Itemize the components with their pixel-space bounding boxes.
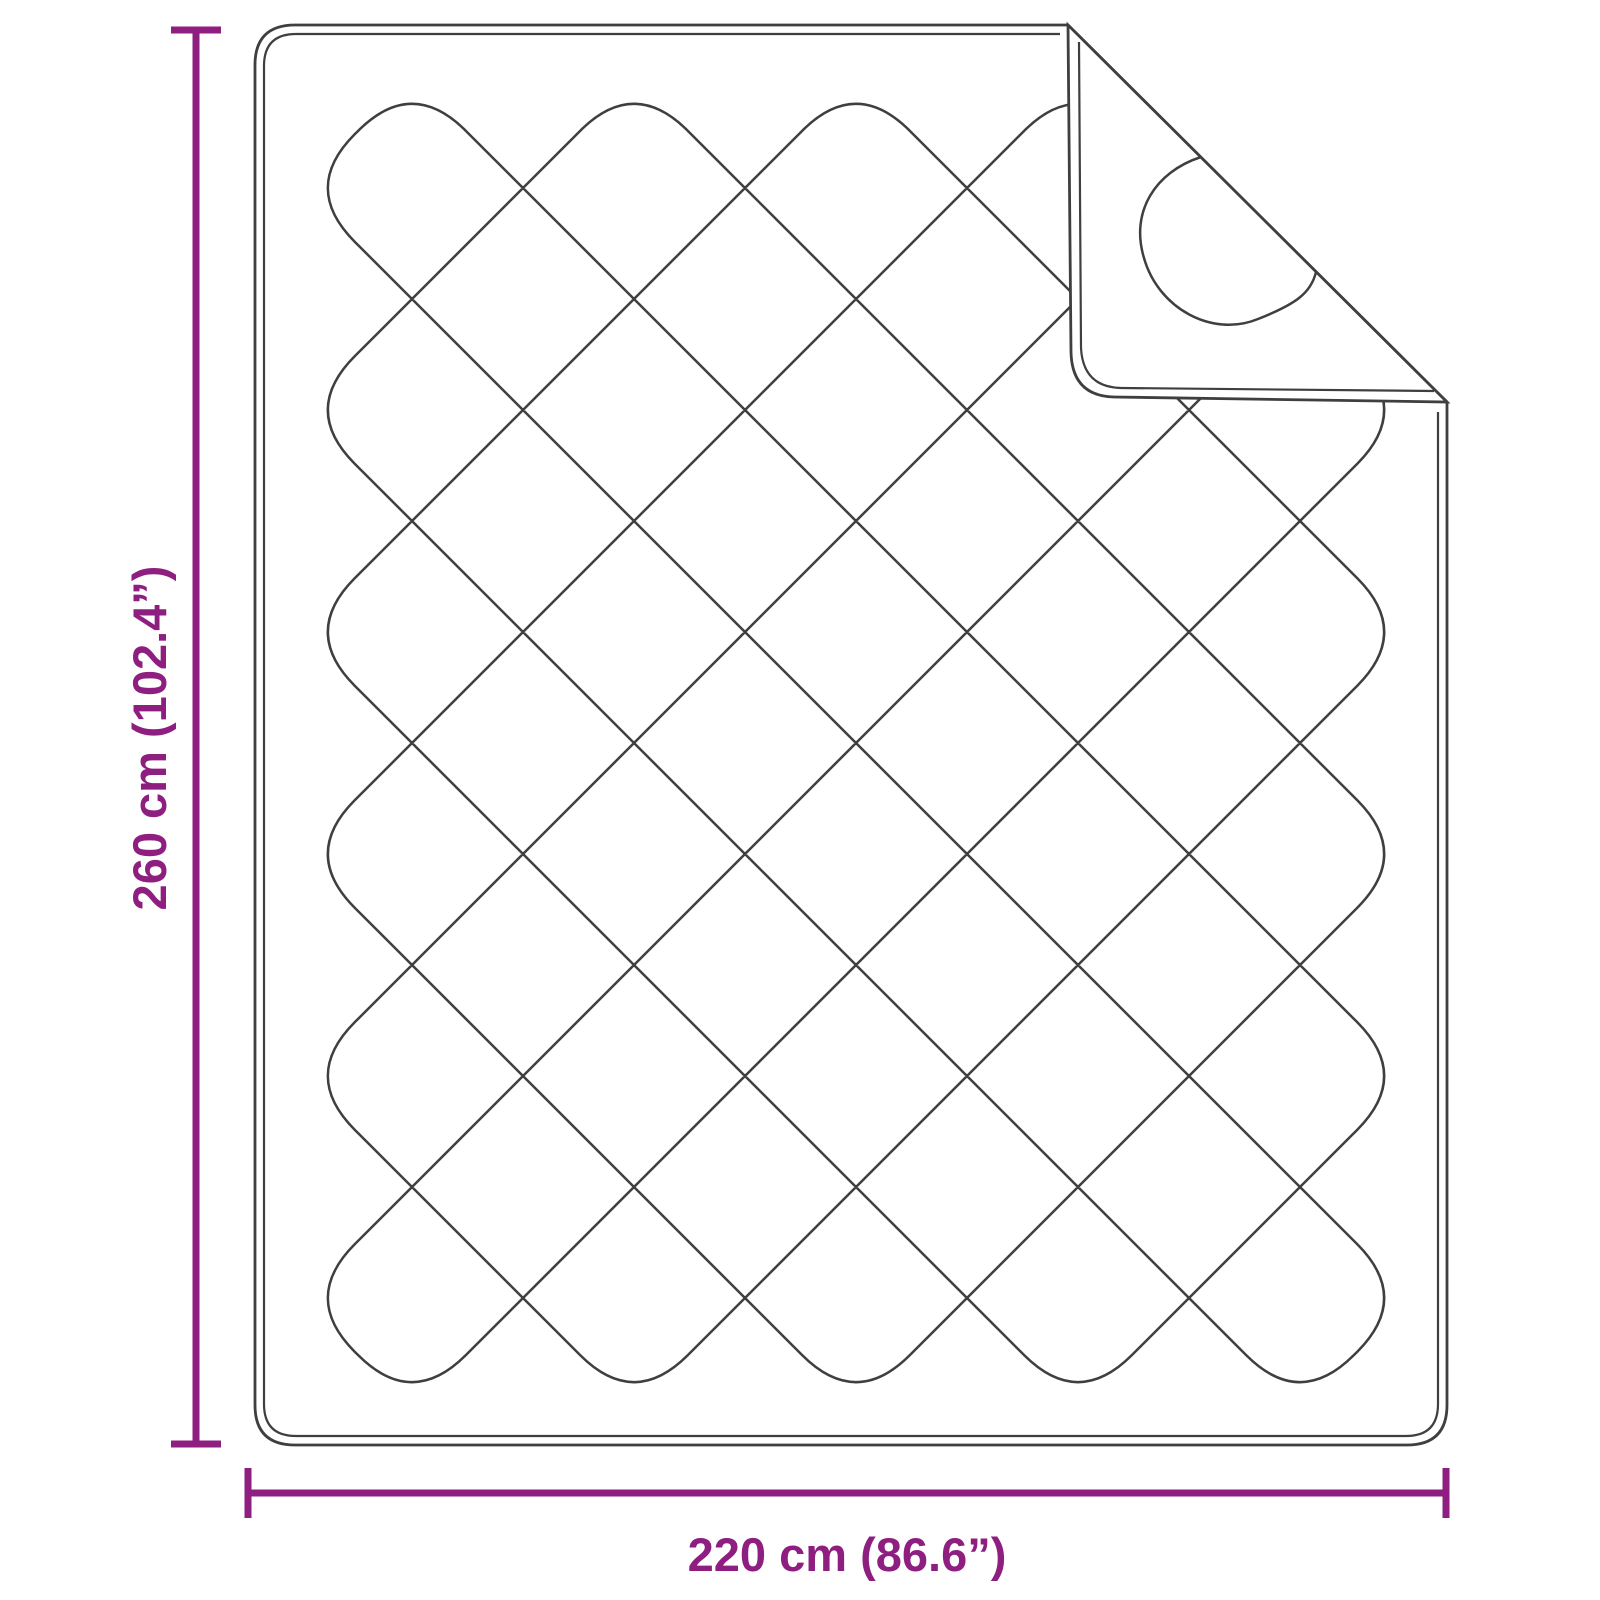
width-dimension-label: 220 cm (86.6”) — [688, 1528, 1007, 1581]
flap-outline — [1068, 25, 1447, 402]
blanket-diagram-svg: 260 cm (102.4”) 220 cm (86.6”) — [0, 0, 1600, 1600]
folded-corner-flap — [1068, 25, 1447, 402]
product-dimension-diagram: 260 cm (102.4”) 220 cm (86.6”) — [0, 0, 1600, 1600]
blanket — [255, 25, 1447, 1445]
height-dimension-label: 260 cm (102.4”) — [123, 566, 176, 911]
width-dimension — [248, 1468, 1446, 1518]
height-dimension — [171, 30, 221, 1444]
